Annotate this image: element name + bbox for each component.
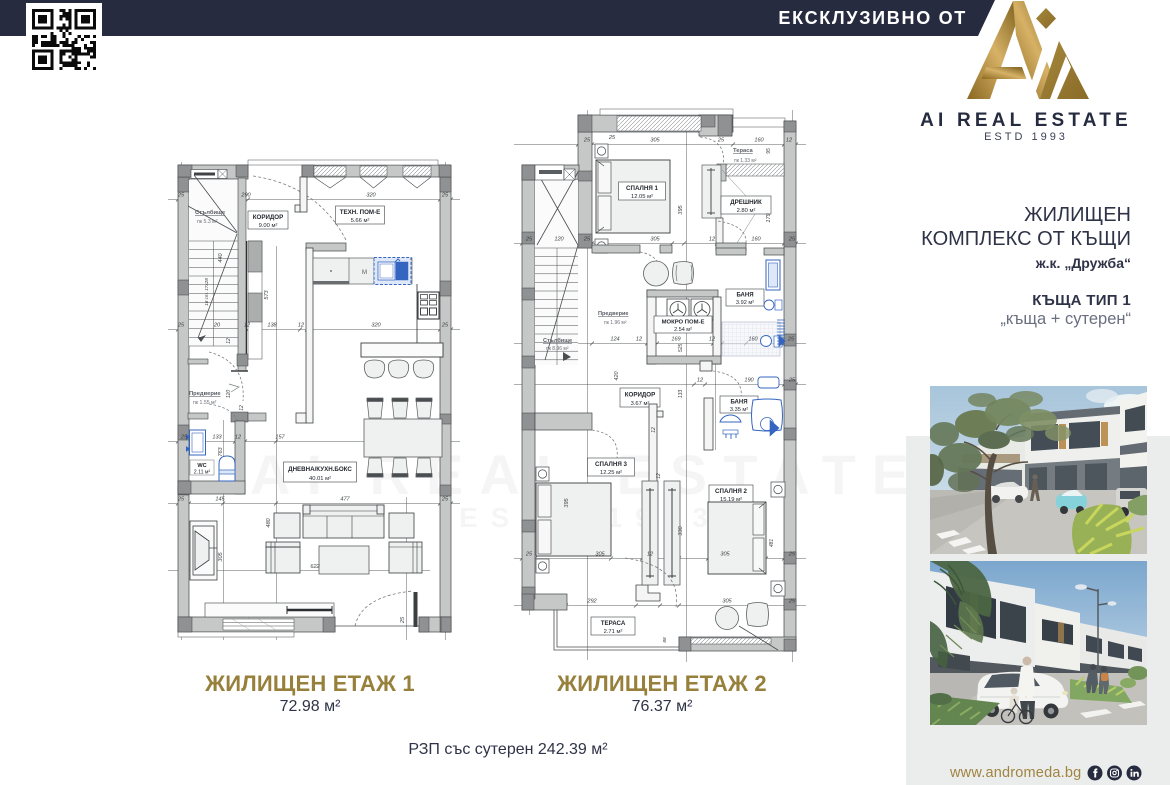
- svg-text:25: 25: [441, 497, 449, 503]
- svg-text:120: 120: [554, 237, 564, 243]
- svg-text:ДНЕВНА/КУХН.БОКС: ДНЕВНА/КУХН.БОКС: [288, 466, 352, 473]
- svg-text:пк 8.96 м²: пк 8.96 м²: [546, 346, 569, 352]
- svg-text:ТЕРАСА: ТЕРАСА: [601, 620, 626, 627]
- svg-text:КОРИДОР: КОРИДОР: [625, 391, 656, 398]
- svg-text:ДРЕШНИК: ДРЕШНИК: [730, 199, 762, 206]
- svg-text:169: 169: [671, 337, 680, 343]
- svg-text:пк 1.33 м²: пк 1.33 м²: [734, 158, 757, 164]
- svg-text:МОКРО ПОМ-Е: МОКРО ПОМ-Е: [662, 319, 705, 325]
- svg-text:160: 160: [754, 138, 764, 144]
- svg-text:12: 12: [235, 435, 242, 441]
- svg-text:25: 25: [788, 378, 796, 384]
- svg-text:305: 305: [218, 551, 224, 561]
- svg-text:пк 1.96 м²: пк 1.96 м²: [604, 320, 627, 326]
- svg-text:12: 12: [636, 337, 643, 343]
- svg-text:Стълбище: Стълбище: [195, 209, 226, 216]
- svg-text:133: 133: [212, 435, 222, 441]
- svg-text:25: 25: [788, 552, 796, 558]
- svg-text:25: 25: [583, 237, 591, 243]
- svg-text:25: 25: [788, 599, 796, 605]
- svg-text:477: 477: [340, 497, 350, 503]
- svg-text:525: 525: [678, 344, 684, 353]
- svg-text:12: 12: [647, 552, 654, 558]
- svg-text:622: 622: [310, 564, 320, 570]
- svg-text:395: 395: [678, 204, 684, 214]
- svg-text:292: 292: [586, 599, 597, 605]
- svg-text:25: 25: [441, 193, 449, 199]
- svg-text:190: 190: [744, 378, 754, 384]
- svg-text:9.00 м²: 9.00 м²: [259, 223, 278, 229]
- svg-text:763: 763: [218, 446, 224, 456]
- svg-text:3.35 м²: 3.35 м²: [730, 407, 748, 413]
- svg-text:95: 95: [766, 148, 772, 154]
- svg-text:M: M: [362, 270, 367, 276]
- svg-text:12: 12: [709, 237, 716, 243]
- svg-text:12: 12: [298, 323, 305, 329]
- svg-text:3.92 м²: 3.92 м²: [736, 300, 754, 306]
- svg-text:Тераса: Тераса: [733, 148, 754, 154]
- svg-text:СПАЛНЯ 3: СПАЛНЯ 3: [595, 461, 627, 468]
- svg-text:420: 420: [614, 372, 620, 381]
- svg-text:3.67 м²: 3.67 м²: [631, 401, 650, 407]
- svg-text:481: 481: [769, 539, 775, 548]
- svg-text:120: 120: [226, 390, 232, 399]
- svg-text:12: 12: [786, 138, 793, 144]
- svg-text:160: 160: [751, 237, 761, 243]
- svg-text:290: 290: [240, 193, 251, 199]
- svg-text:25: 25: [717, 138, 725, 144]
- svg-text:25: 25: [177, 497, 185, 503]
- svg-text:124: 124: [610, 337, 619, 343]
- svg-text:WC: WC: [197, 463, 206, 469]
- svg-text:25: 25: [177, 323, 185, 329]
- svg-text:145: 145: [215, 497, 225, 503]
- svg-text:12: 12: [697, 378, 704, 384]
- svg-text:12.05 м²: 12.05 м²: [631, 194, 653, 200]
- svg-text:12: 12: [651, 427, 657, 433]
- svg-text:2.71 м²: 2.71 м²: [604, 629, 623, 635]
- svg-text:160: 160: [748, 337, 758, 343]
- svg-text:12.25 м²: 12.25 м²: [600, 470, 622, 476]
- svg-text:12: 12: [244, 323, 251, 329]
- svg-text:Предверие: Предверие: [598, 311, 629, 317]
- svg-text:305: 305: [595, 552, 605, 558]
- svg-text:ТЕХН. ПОМ-Е: ТЕХН. ПОМ-Е: [340, 209, 381, 216]
- svg-text:Стълбище: Стълбище: [543, 337, 572, 344]
- svg-text:305: 305: [650, 237, 660, 243]
- svg-text:12: 12: [709, 337, 716, 343]
- svg-text:25: 25: [180, 435, 188, 441]
- svg-text:25: 25: [525, 237, 533, 243]
- svg-text:12: 12: [226, 338, 232, 344]
- svg-text:305: 305: [650, 138, 660, 144]
- svg-text:2.54 м²: 2.54 м²: [674, 327, 692, 333]
- svg-text:395: 395: [564, 497, 570, 507]
- svg-text:Предверие: Предверие: [189, 391, 221, 397]
- svg-text:12: 12: [656, 473, 662, 479]
- svg-text:25: 25: [608, 135, 616, 141]
- svg-text:БАНЯ: БАНЯ: [736, 292, 753, 298]
- svg-text:СПАЛНЯ 1: СПАЛНЯ 1: [626, 185, 658, 192]
- svg-text:2.11 м²: 2.11 м²: [194, 470, 211, 476]
- svg-text:25: 25: [788, 237, 796, 243]
- svg-text:138: 138: [267, 323, 277, 329]
- svg-text:25: 25: [583, 138, 591, 144]
- svg-text:88: 88: [662, 637, 668, 643]
- svg-text:25: 25: [400, 616, 406, 624]
- svg-text:480: 480: [266, 517, 272, 527]
- svg-text:320: 320: [366, 193, 376, 199]
- svg-text:12: 12: [239, 405, 245, 411]
- svg-text:440: 440: [218, 252, 224, 262]
- svg-text:133: 133: [678, 390, 684, 399]
- svg-text:40.01 м²: 40.01 м²: [309, 476, 331, 482]
- svg-text:305: 305: [722, 599, 732, 605]
- svg-text:305: 305: [720, 552, 730, 558]
- svg-text:25: 25: [441, 323, 449, 329]
- svg-text:20: 20: [213, 323, 221, 329]
- svg-text:25: 25: [787, 337, 795, 343]
- svg-text:пк 1.55 м²: пк 1.55 м²: [193, 400, 217, 406]
- svg-text:25: 25: [525, 552, 533, 558]
- svg-text:179: 179: [766, 213, 772, 222]
- svg-text:5.66 м²: 5.66 м²: [351, 218, 370, 224]
- svg-text:2.80 м²: 2.80 м²: [737, 208, 756, 214]
- svg-text:330: 330: [678, 525, 684, 535]
- svg-text:БАНЯ: БАНЯ: [730, 399, 747, 405]
- svg-text:157: 157: [275, 435, 285, 441]
- svg-text:320: 320: [371, 323, 381, 329]
- svg-text:пк 5.3 м²: пк 5.3 м²: [197, 219, 218, 225]
- svg-text:25: 25: [177, 193, 185, 199]
- svg-text:573: 573: [264, 289, 270, 299]
- svg-text:18 ст. 17х28: 18 ст. 17х28: [204, 278, 209, 306]
- svg-text:СПАЛНЯ 2: СПАЛНЯ 2: [715, 488, 747, 495]
- svg-text:КОРИДОР: КОРИДОР: [253, 214, 284, 221]
